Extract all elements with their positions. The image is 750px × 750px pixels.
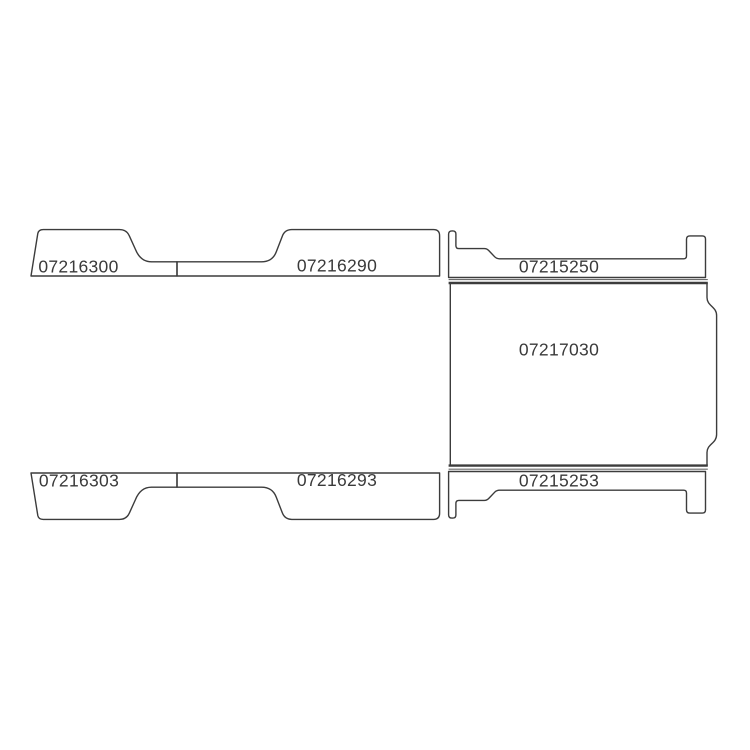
top-rail-lines: [449, 280, 708, 283]
bottom-rail-lines: [449, 466, 708, 470]
part-number-bottom-right: 07215253: [519, 471, 599, 491]
part-number-top-middle: 07216290: [297, 256, 377, 276]
center-floor-panel-outline: [450, 283, 716, 466]
part-number-labels: 07216300 07216290 07215250 07217030 0721…: [38, 256, 599, 491]
part-number-center: 07217030: [519, 340, 599, 360]
panel-diagram-drawing: 07216300 07216290 07215250 07217030 0721…: [0, 0, 750, 750]
part-number-top-right: 07215250: [519, 257, 599, 277]
part-number-top-left: 07216300: [38, 257, 118, 277]
panel-diagram: 07216300 07216290 07215250 07217030 0721…: [0, 0, 750, 750]
part-number-bottom-left: 07216303: [39, 471, 119, 491]
part-number-bottom-middle: 07216293: [297, 470, 377, 490]
